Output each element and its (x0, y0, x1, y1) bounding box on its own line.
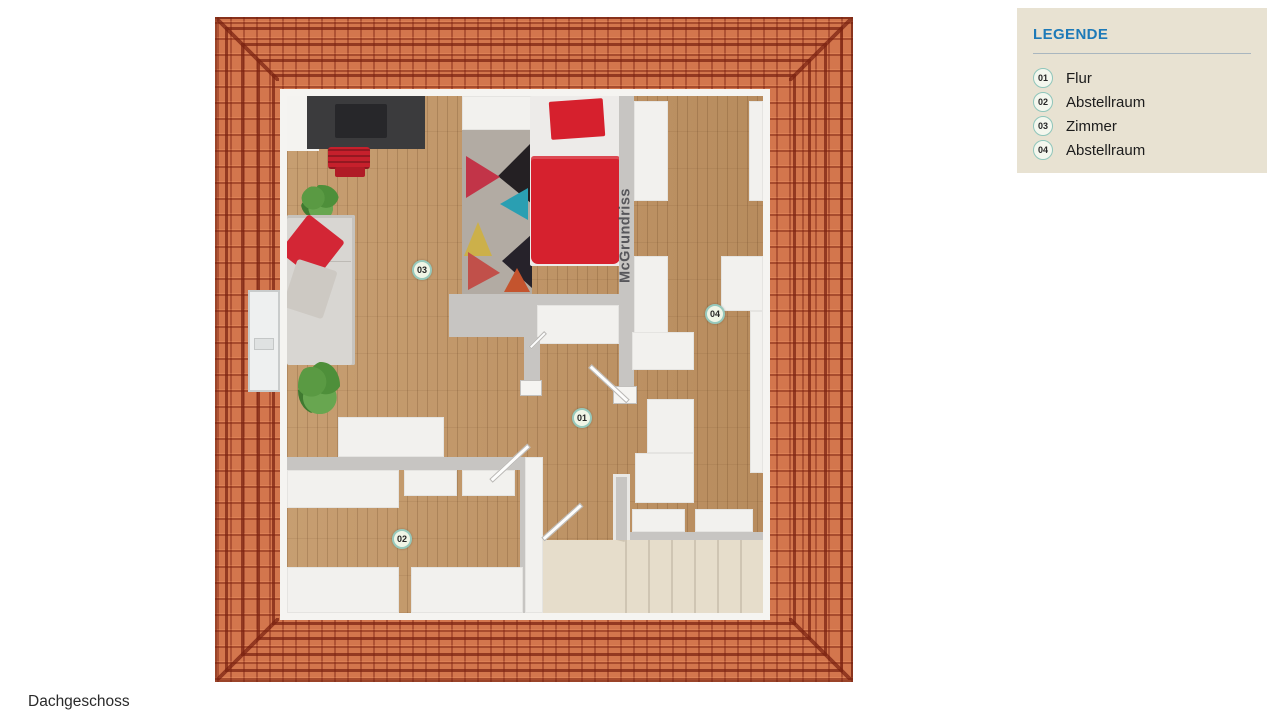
roof-hip-line (789, 19, 851, 81)
room-badge-zimmer: 03 (412, 260, 432, 280)
dormer-window (248, 290, 280, 392)
storage-cabinet (287, 470, 399, 508)
cabinet (632, 509, 685, 532)
legend-label: Zimmer (1066, 118, 1117, 135)
roof-hip-line (217, 618, 279, 680)
floorplan-interior: 03 04 01 02 McGrundriss (280, 89, 770, 620)
stair-wall-post (613, 474, 630, 546)
legend-label: Flur (1066, 70, 1092, 87)
room-badge-abstellraum-rechts: 04 (705, 304, 725, 324)
storage-cabinet (411, 567, 523, 613)
legend-label: Abstellraum (1066, 94, 1145, 111)
storage-cabinet (404, 470, 457, 496)
sideboard (338, 417, 444, 457)
legend-item-zimmer: 03 Zimmer (1033, 114, 1251, 138)
room-badge-flur: 01 (572, 408, 592, 428)
bed-duvet (531, 156, 620, 264)
desk-chair-seat (335, 167, 365, 177)
storage-cabinet (462, 470, 515, 496)
knee-wall-storage (647, 399, 694, 453)
stair-winder-line (548, 540, 625, 541)
storage-cabinet (287, 567, 399, 613)
cabinet (537, 305, 619, 344)
knee-wall-storage (632, 332, 694, 370)
bed-alcove-wall (462, 96, 532, 130)
stair-winder-line (543, 540, 625, 542)
legend-title: LEGENDE (1033, 26, 1251, 43)
knee-wall-storage (750, 311, 763, 473)
legend-item-abstellraum-1: 02 Abstellraum (1033, 90, 1251, 114)
door-leaf (541, 503, 583, 542)
knee-wall-storage (634, 101, 668, 201)
floor-title: Dachgeschoss (28, 693, 130, 711)
legend-badge: 03 (1033, 116, 1053, 136)
staircase (543, 540, 763, 613)
knee-wall-storage (721, 256, 763, 311)
laptop (335, 104, 387, 138)
knee-wall-storage (749, 101, 763, 201)
watermark: McGrundriss (618, 161, 635, 311)
bed-pillow (549, 98, 606, 140)
wall (287, 457, 533, 470)
stair-winder-line (543, 540, 625, 542)
legend-divider (1033, 53, 1251, 54)
legend-panel: LEGENDE 01 Flur 02 Abstellraum 03 Zimmer… (1017, 8, 1267, 173)
legend-label: Abstellraum (1066, 142, 1145, 159)
knee-wall-storage (635, 453, 694, 503)
roof-hip-line (217, 19, 279, 81)
legend-badge: 02 (1033, 92, 1053, 112)
door-post (520, 380, 542, 396)
cabinet (695, 509, 753, 532)
wall (525, 457, 543, 613)
roof-border: 03 04 01 02 McGrundriss (215, 17, 853, 682)
room-badge-abstellraum-unten: 02 (392, 529, 412, 549)
desk-chair (328, 147, 370, 169)
legend-item-abstellraum-2: 04 Abstellraum (1033, 138, 1251, 162)
potted-plant (298, 362, 340, 414)
legend-badge: 01 (1033, 68, 1053, 88)
potted-plant (301, 185, 339, 219)
legend-badge: 04 (1033, 140, 1053, 160)
roof-hip-line (789, 618, 851, 680)
legend-item-flur: 01 Flur (1033, 66, 1251, 90)
rug (462, 130, 532, 295)
floorplan-page: 03 04 01 02 McGrundriss LEGENDE 01 Flur … (0, 0, 1280, 721)
